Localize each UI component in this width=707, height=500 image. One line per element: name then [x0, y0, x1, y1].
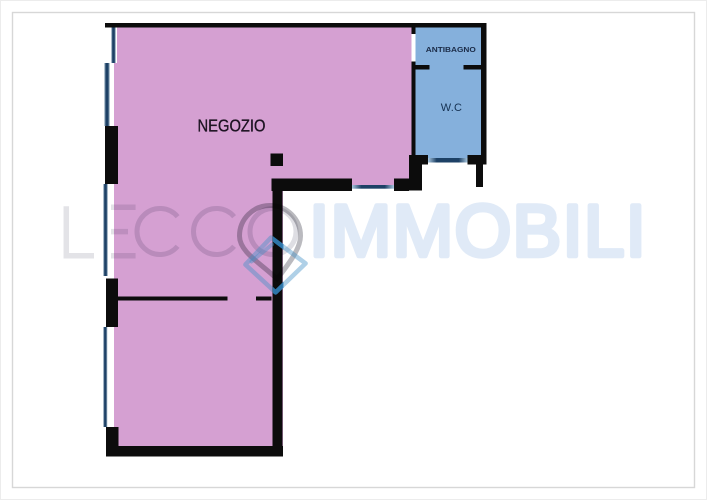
svg-text:ANTIBAGNO: ANTIBAGNO: [426, 45, 476, 54]
svg-text:IMMOBILI: IMMOBILI: [309, 191, 647, 272]
svg-text:W.C: W.C: [441, 102, 462, 114]
svg-text:NEGOZIO: NEGOZIO: [198, 116, 266, 136]
